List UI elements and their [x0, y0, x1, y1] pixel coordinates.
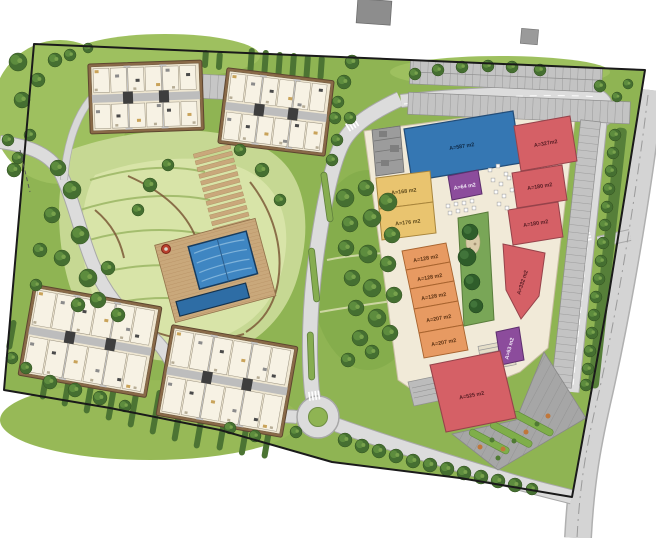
service-building [372, 126, 404, 176]
site-plan: A=587 m2 A=327m2 A=180 m2 A=180 m2 A=168… [0, 0, 656, 538]
roundabout [297, 396, 339, 438]
offsite-building-top [356, 0, 392, 25]
offsite-building-small [520, 28, 538, 44]
residential-building-1 [88, 60, 204, 134]
retail-unit-red-2: A=180 m2 [512, 165, 567, 208]
kiosk-unit-1: A=64 m2 [448, 170, 482, 200]
retail-unit-red-5: A=525 m2 [430, 351, 516, 432]
residential-building-2 [218, 68, 334, 157]
retail-unit-red-1: A=327m2 [514, 116, 577, 171]
retail-unit-red-3: A=180 m2 [508, 202, 563, 245]
